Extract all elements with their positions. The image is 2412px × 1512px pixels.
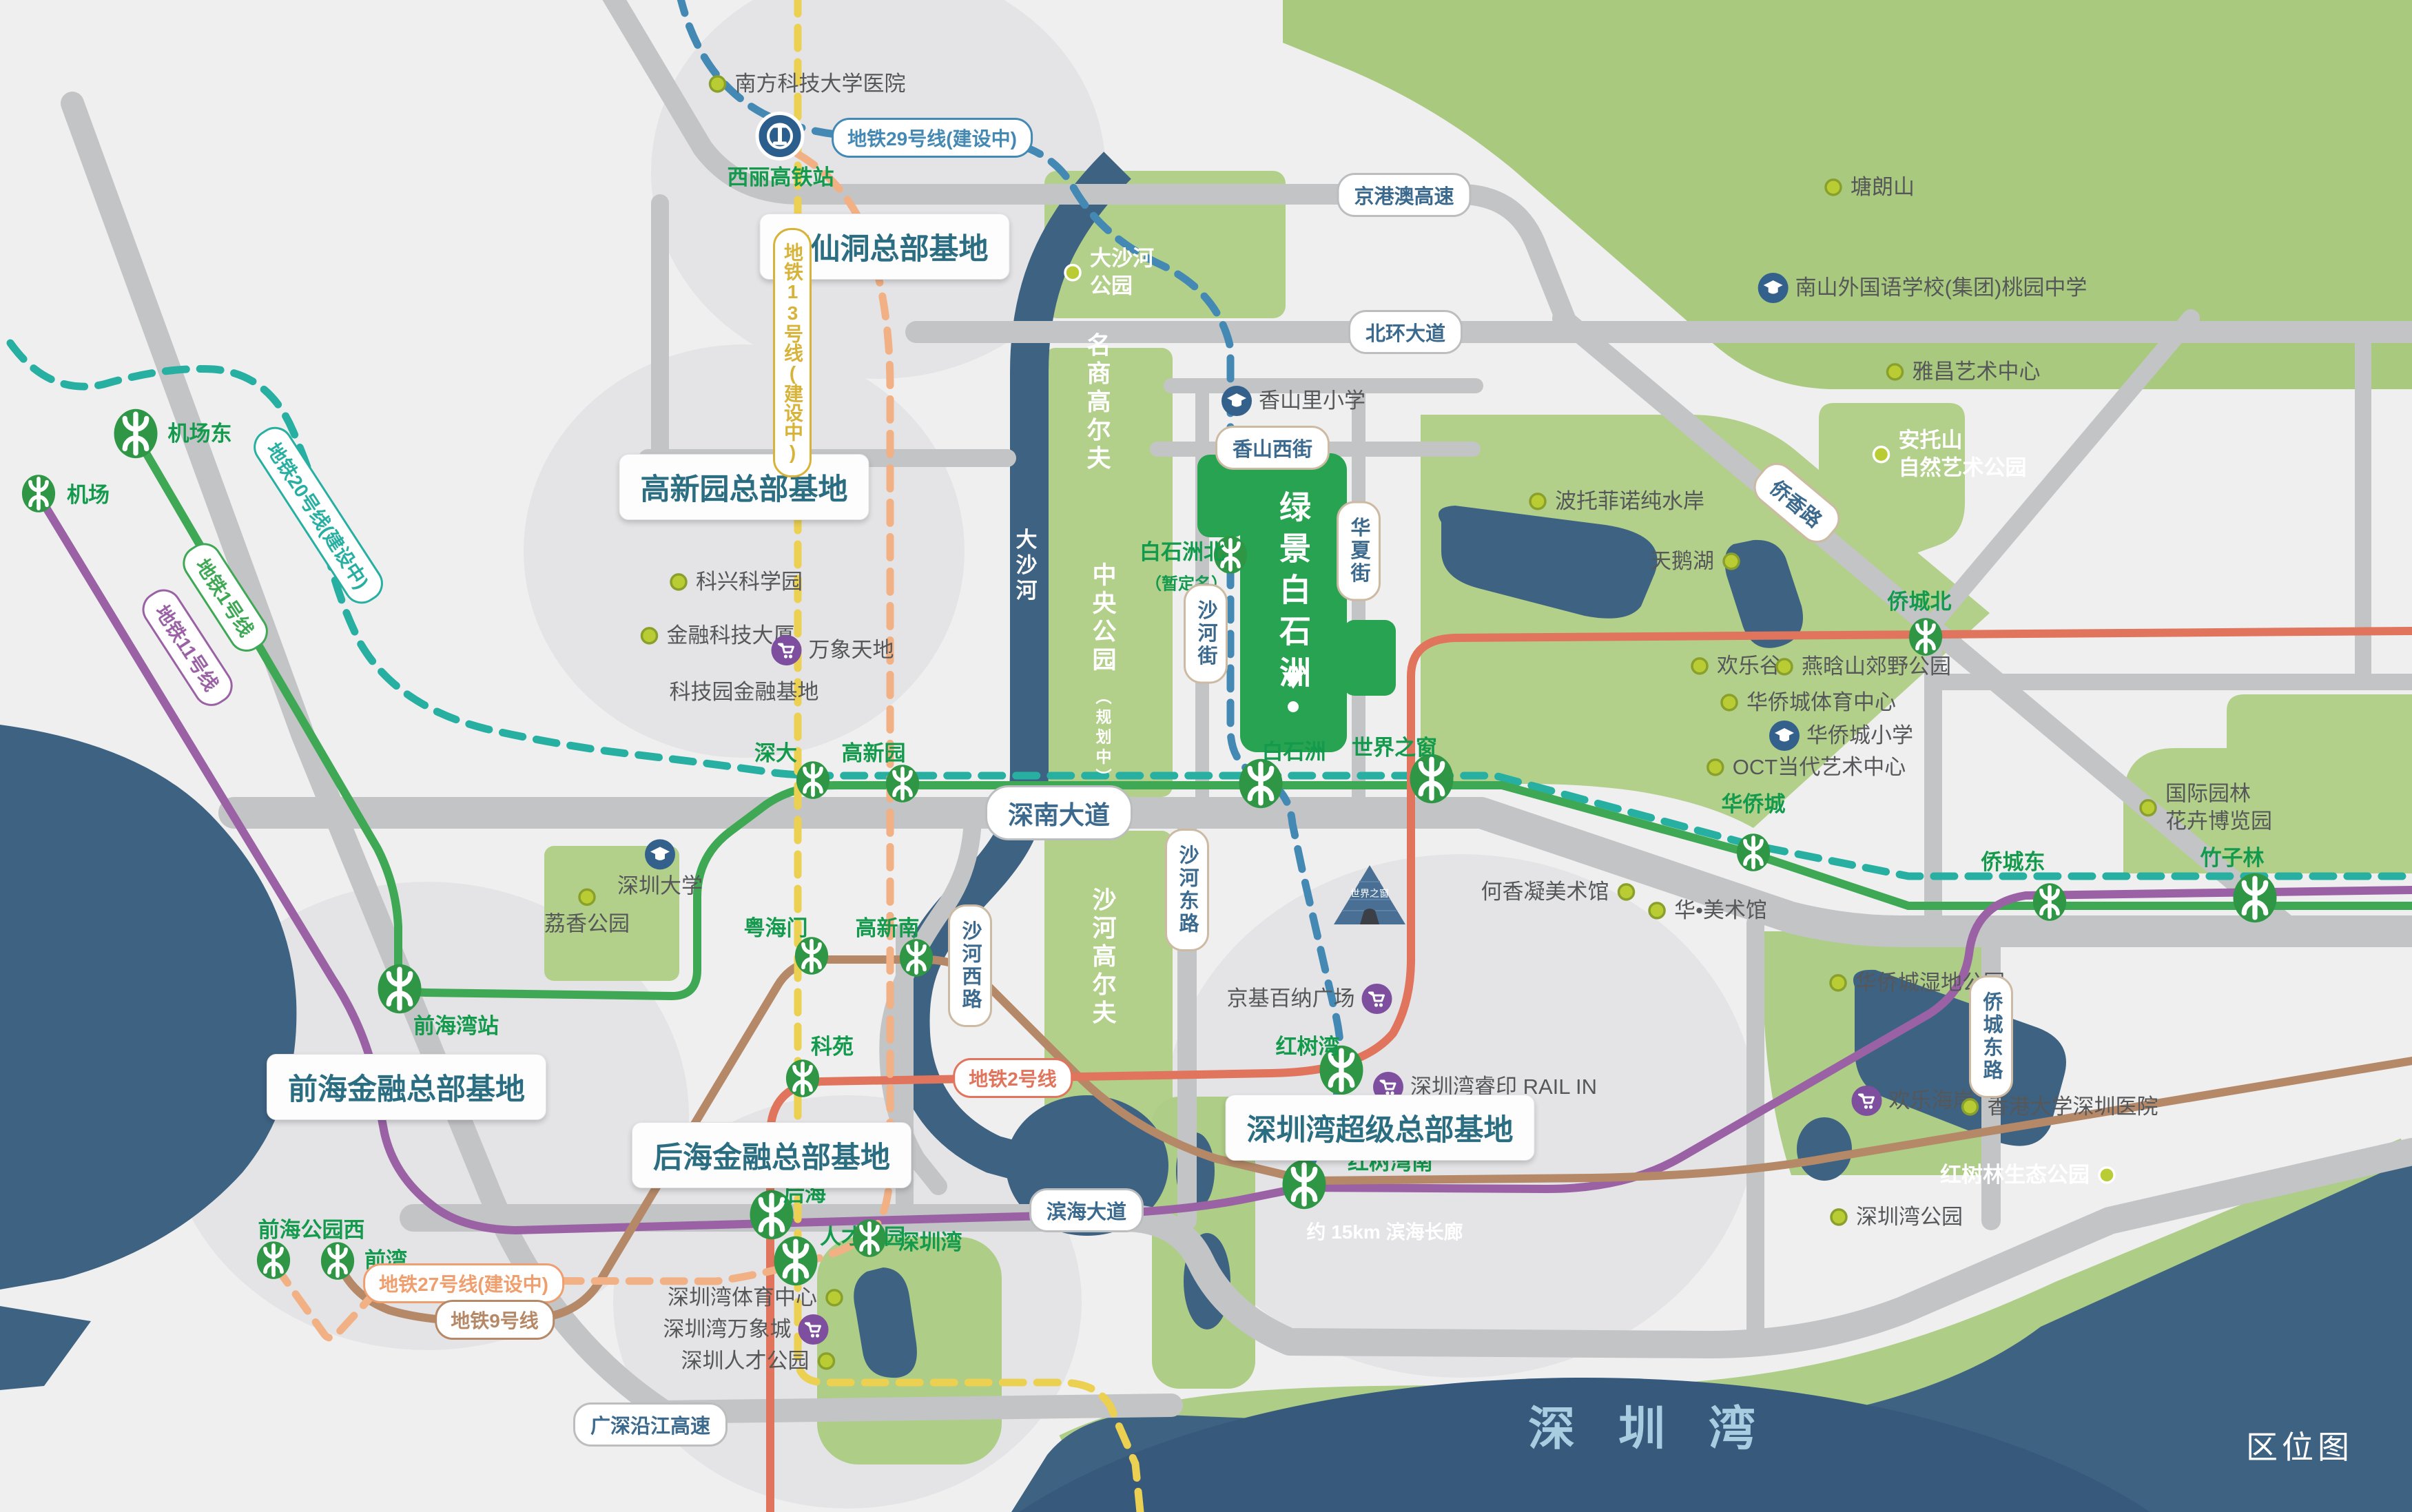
poi-label: 深圳湾公园 xyxy=(1856,1203,1963,1231)
poi: 南方科技大学医院 xyxy=(707,70,906,98)
poi-dot-icon xyxy=(576,886,598,908)
poi: 欢乐海岸 xyxy=(1851,1085,1975,1117)
mtr-logo-icon xyxy=(255,1240,293,1281)
shopping-icon xyxy=(1851,1085,1883,1117)
station-label: 前海湾站 xyxy=(413,1013,499,1040)
area-label: 沙河高尔夫 xyxy=(1085,887,1120,1028)
poi-label: 塘朗山 xyxy=(1851,174,1915,201)
mtr-logo-icon xyxy=(2031,882,2069,923)
road-label: 滨海大道 xyxy=(1029,1188,1144,1232)
poi-dot-icon xyxy=(1827,972,1849,994)
poi-label: 安托山 自然艺术公园 xyxy=(1899,427,2027,483)
metro-station-icon xyxy=(794,760,832,805)
metro-station-icon xyxy=(1279,1157,1328,1214)
poi-label: 天鹅湖 xyxy=(1650,548,1714,575)
poi-label: 华侨城体育中心 xyxy=(1746,689,1896,716)
landmark-label: 世界之窗 xyxy=(1350,888,1389,899)
hq-base-label: 前海金融总部基地 xyxy=(267,1054,546,1120)
road-label: 深南大道 xyxy=(985,785,1133,840)
poi-label: 燕晗山郊野公园 xyxy=(1802,653,1951,681)
metro-line-label: 地铁9号线 xyxy=(435,1300,555,1340)
poi-dot-icon xyxy=(1773,656,1795,678)
road-label: 北环大道 xyxy=(1348,310,1463,354)
location-map: 世界之窗 深 圳 湾 区位图 绿景白石洲 西丽高铁站机场东机场前海湾站前海公园西… xyxy=(0,0,2412,1512)
poi-dot-icon xyxy=(816,1350,838,1372)
poi: 燕晗山郊野公园 xyxy=(1773,653,1951,681)
road-label: 沙河街 xyxy=(1184,584,1228,684)
metro-station-icon xyxy=(784,1058,822,1103)
poi: 雅昌艺术中心 xyxy=(1884,358,2041,386)
poi-dot-icon xyxy=(1689,655,1711,677)
station-label: 侨城东 xyxy=(1981,849,2045,876)
mtr-logo-icon xyxy=(851,1218,889,1259)
metro-line-label: 地铁2号线 xyxy=(953,1058,1073,1098)
poi-label: 南方科技大学医院 xyxy=(735,70,906,98)
rail-station-icon xyxy=(753,110,807,167)
project-name-label: 绿景白石洲 xyxy=(1270,490,1316,697)
mtr-logo-icon xyxy=(319,1241,357,1282)
station-label: 世界之窗 xyxy=(1352,734,1437,762)
shopping-icon xyxy=(1361,983,1393,1015)
mtr-logo-icon xyxy=(375,962,424,1015)
poi-label: 香港大学深圳医院 xyxy=(1988,1093,2158,1121)
poi: 塘朗山 xyxy=(1822,174,1915,201)
mtr-logo-icon xyxy=(784,1058,822,1099)
area-label: 大沙河 xyxy=(1009,528,1040,605)
road-label: 华夏街 xyxy=(1337,501,1381,601)
station-label: 白石洲 xyxy=(1262,738,1326,766)
mtr-logo-icon xyxy=(1279,1157,1328,1211)
station-label: 深大 xyxy=(754,740,797,767)
poi-dot-icon xyxy=(1822,176,1844,198)
metro-line-label: 地铁27号线(建设中) xyxy=(363,1263,564,1303)
mtr-logo-icon xyxy=(898,938,936,979)
mtr-logo-icon xyxy=(884,763,922,805)
poi-dot-icon xyxy=(1828,1206,1850,1228)
poi-label: 华•美术馆 xyxy=(1674,897,1767,924)
poi: 科技园金融基地 xyxy=(670,679,819,706)
mtr-logo-icon xyxy=(111,406,160,460)
mtr-logo-icon xyxy=(20,473,58,515)
poi: 南山外国语学校(集团)桃园中学 xyxy=(1758,272,2088,304)
school-icon xyxy=(1758,272,1789,304)
railway-logo-icon xyxy=(753,110,807,163)
poi-label: 欢乐谷 xyxy=(1717,652,1781,680)
shopping-icon xyxy=(798,1314,829,1345)
road-label: 香山西街 xyxy=(1215,426,1330,470)
road-label: 京港澳高速 xyxy=(1337,173,1471,217)
poi-dot-icon xyxy=(668,571,690,593)
poi-dot-icon xyxy=(707,73,729,95)
hq-base-label: 深圳湾超级总部基地 xyxy=(1226,1095,1535,1161)
metro-station-icon xyxy=(111,406,160,464)
map-geometry: 世界之窗 xyxy=(0,0,2412,1512)
poi: 大沙河 公园 xyxy=(1062,245,1154,301)
mtr-logo-icon xyxy=(1907,617,1945,658)
school-icon xyxy=(1769,720,1800,752)
metro-station-icon xyxy=(1735,832,1773,877)
station-label: 华侨城 xyxy=(1722,791,1786,818)
area-label: 约 15km 滨海长廊 xyxy=(1306,1220,1463,1245)
poi-dot-icon xyxy=(1959,1096,1981,1118)
poi-dot-icon xyxy=(823,1287,845,1309)
poi: 京基百纳广场 xyxy=(1227,983,1393,1015)
poi-dot-icon xyxy=(1884,361,1906,383)
poi-label: 深圳湾万象城 xyxy=(663,1316,792,1343)
metro-station-icon xyxy=(851,1218,889,1263)
station-label: 侨城北 xyxy=(1888,588,1952,616)
map-corner-tag: 区位图 xyxy=(2246,1422,2353,1468)
poi: 科兴科学园 xyxy=(668,568,803,596)
mtr-logo-icon xyxy=(1735,832,1773,873)
poi-label: 香山里小学 xyxy=(1259,387,1365,415)
poi: 安托山 自然艺术公园 xyxy=(1870,427,2027,483)
road-label: 广深沿江高速 xyxy=(573,1402,728,1447)
poi-label: 京基百纳广场 xyxy=(1227,985,1355,1013)
poi: 深圳湾公园 xyxy=(1828,1203,1963,1231)
poi: 天鹅湖 xyxy=(1650,548,1742,575)
poi-label: OCT当代艺术中心 xyxy=(1733,754,1906,781)
metro-station-icon xyxy=(319,1241,357,1285)
poi: 波托菲诺纯水岸 xyxy=(1527,488,1704,515)
station-label: 高新南 xyxy=(856,915,920,942)
poi-label: 科技园金融基地 xyxy=(670,679,819,706)
hq-base-label: 后海金融总部基地 xyxy=(632,1122,911,1188)
poi: 何香凝美术馆 xyxy=(1481,878,1638,906)
metro-line-label: 地铁13号线(建设中) xyxy=(773,228,812,477)
station-label: 竹子林 xyxy=(2200,845,2265,872)
metro-station-icon xyxy=(2031,882,2069,926)
metro-line-label: 地铁29号线(建设中) xyxy=(832,118,1033,158)
poi-label: 大沙河 公园 xyxy=(1090,245,1154,301)
poi: 深圳湾万象城 xyxy=(663,1314,829,1345)
road-label: 沙河西路 xyxy=(948,904,992,1027)
mtr-logo-icon xyxy=(794,760,832,801)
poi-dot-icon xyxy=(1527,490,1549,512)
shopping-icon xyxy=(771,634,803,666)
poi-label: 雅昌艺术中心 xyxy=(1913,358,2041,386)
poi: 深圳大学 xyxy=(617,838,703,900)
area-label: 中央公园 xyxy=(1085,562,1120,675)
metro-station-icon xyxy=(898,938,936,982)
area-label: 名商高尔夫 xyxy=(1080,333,1115,474)
poi-label: 深圳湾体育中心 xyxy=(668,1284,817,1312)
station-label: 白石洲北 xyxy=(1140,539,1225,566)
mtr-logo-icon xyxy=(771,1234,820,1287)
project-marker-dot xyxy=(1288,701,1299,712)
poi-dot-icon xyxy=(1720,550,1742,572)
poi-label: 国际园林 花卉博览园 xyxy=(2165,780,2272,836)
poi-label: 何香凝美术馆 xyxy=(1481,878,1609,906)
poi-dot-icon xyxy=(1646,900,1668,922)
poi: 华•美术馆 xyxy=(1646,897,1767,924)
poi: 香山里小学 xyxy=(1221,385,1365,417)
poi-label: 深圳人才公园 xyxy=(681,1347,810,1375)
station-label: 科苑 xyxy=(811,1033,854,1061)
poi: 华侨城小学 xyxy=(1769,720,1913,752)
area-label: （规划中） xyxy=(1091,689,1114,789)
poi: 欢乐谷 xyxy=(1689,652,1781,680)
poi: 国际园林 花卉博览园 xyxy=(2137,780,2272,836)
poi-label: 荔香公园 xyxy=(544,910,630,938)
poi: 万象天地 xyxy=(771,634,894,666)
poi-dot-icon xyxy=(2096,1164,2118,1186)
station-label: 粤海门 xyxy=(744,915,808,942)
metro-station-icon xyxy=(2230,871,2279,928)
poi-dot-icon xyxy=(639,625,661,647)
mtr-logo-icon xyxy=(2230,871,2279,924)
poi-dot-icon xyxy=(1062,262,1084,284)
poi: 深圳湾体育中心 xyxy=(668,1284,845,1312)
bay-name-label: 深 圳 湾 xyxy=(1528,1391,1771,1459)
poi: 荔香公园 xyxy=(544,886,630,938)
station-label: 红树湾 xyxy=(1276,1033,1340,1061)
road-label: 沙河东路 xyxy=(1165,829,1209,951)
project-marker-icon xyxy=(1282,672,1304,689)
poi-label: 深圳大学 xyxy=(617,872,703,900)
poi: 红树林生态公园 xyxy=(1940,1161,2118,1189)
station-label: 西丽高铁站 xyxy=(728,164,834,191)
poi-label: 科兴科学园 xyxy=(696,568,803,596)
poi-label: 红树林生态公园 xyxy=(1940,1161,2090,1189)
poi: 华侨城体育中心 xyxy=(1718,689,1896,716)
poi-label: 万象天地 xyxy=(809,636,894,664)
poi-label: 南山外国语学校(集团)桃园中学 xyxy=(1795,274,2088,302)
poi-dot-icon xyxy=(1704,756,1726,778)
poi-dot-icon xyxy=(1616,881,1638,903)
metro-station-icon xyxy=(255,1240,293,1285)
school-icon xyxy=(1221,385,1253,417)
poi-label: 华侨城小学 xyxy=(1806,722,1913,749)
poi: OCT当代艺术中心 xyxy=(1704,754,1906,781)
metro-station-icon xyxy=(771,1234,820,1291)
poi-dot-icon xyxy=(2137,797,2159,819)
poi-label: 波托菲诺纯水岸 xyxy=(1555,488,1704,515)
road-label: 侨城东路 xyxy=(1969,975,2013,1098)
station-label: 机场东 xyxy=(168,420,232,448)
school-icon xyxy=(644,838,676,870)
metro-station-icon xyxy=(20,473,58,518)
metro-station-icon xyxy=(884,763,922,808)
metro-station-icon xyxy=(375,962,424,1019)
station-label: 高新园 xyxy=(842,740,906,767)
poi: 深圳人才公园 xyxy=(681,1347,838,1375)
poi-dot-icon xyxy=(1870,444,1893,466)
poi-dot-icon xyxy=(1718,692,1740,714)
station-label: 深圳湾 xyxy=(898,1229,962,1256)
station-label: 机场 xyxy=(67,481,110,509)
hq-base-label: 高新园总部基地 xyxy=(619,454,869,520)
